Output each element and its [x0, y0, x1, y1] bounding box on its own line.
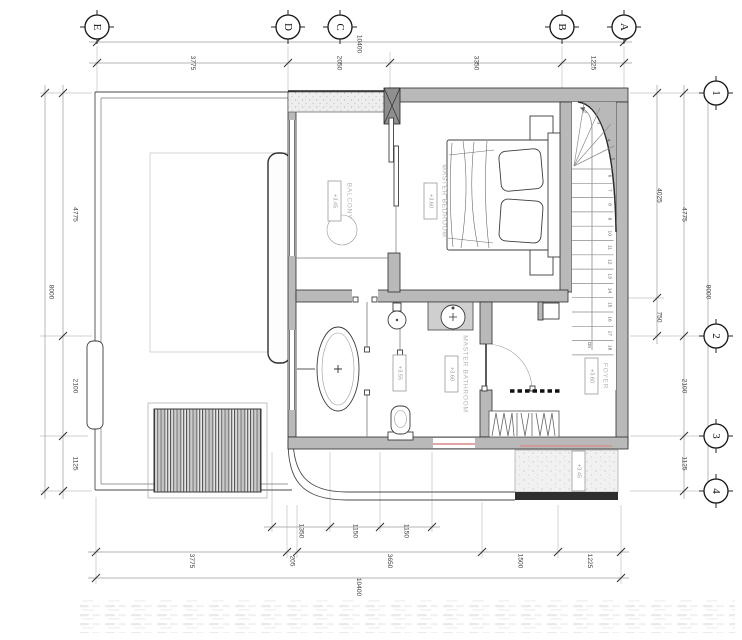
dim-text: 10400: [356, 35, 363, 54]
label-ledge-level: +3.45: [572, 451, 585, 491]
room-name: MASTER BEDROOM: [441, 164, 448, 237]
planter-band: [288, 92, 388, 112]
dim-text: 1150: [403, 524, 410, 539]
louver-grille: [154, 409, 261, 492]
wall-balcony-stub: [388, 253, 400, 292]
room-name: FOYER: [602, 363, 609, 389]
vanity: [428, 302, 473, 330]
label-balcony: +3.45 BALCONY: [328, 181, 353, 221]
dim-text: 1500: [517, 554, 524, 569]
stair-number: 18: [607, 345, 613, 351]
stair-number: 14: [607, 288, 613, 294]
level-tag: +3.60: [428, 194, 434, 208]
dim-text: 1150: [352, 524, 359, 539]
wall-north: [388, 88, 628, 102]
wall-bedroom-stair: [560, 102, 572, 292]
grid-letter: E: [91, 24, 103, 31]
stair-number: 17: [607, 331, 613, 337]
sliding-door-panel: [389, 118, 394, 162]
grid-letter: 2: [710, 333, 722, 339]
faded-footer-text: [80, 599, 735, 633]
bed-headboard: [548, 133, 560, 257]
stair-number: 7: [607, 189, 613, 192]
stair-number: 12: [607, 259, 613, 265]
dim-text: 1225: [590, 56, 597, 71]
wall-east: [616, 102, 628, 445]
grid-letter: C: [334, 23, 346, 30]
dim-text: 8000: [705, 285, 712, 300]
wall-bath-north: [296, 290, 568, 302]
closet-hanging-clothes: [489, 411, 559, 437]
stair-number: 4: [606, 139, 612, 142]
level-tag: +3.60: [449, 367, 455, 381]
dim-text: 750: [656, 311, 663, 322]
west-glazing-balcony: [289, 120, 296, 256]
room-name: MASTER BATHROOM: [462, 335, 469, 412]
wall-bath-foyer-upper: [480, 302, 492, 344]
dim-text: 2100: [72, 379, 79, 394]
south-opening: [433, 438, 475, 448]
floor-plan-drawing: 23456789101112131415161718 Dn: [0, 0, 742, 640]
room-name: BALCONY: [346, 183, 353, 219]
floor-plan-sheet: 23456789101112131415161718 Dn: [0, 0, 742, 640]
stair-number: 9: [607, 218, 613, 221]
grid-letter: B: [556, 23, 568, 30]
dim-text: 1125: [681, 456, 688, 471]
dim-text: 4775: [681, 207, 688, 222]
stair-number: 6: [607, 175, 613, 178]
stair-number: 5: [610, 158, 616, 161]
grid-letter: A: [618, 23, 630, 31]
bottom-ledge-edge: [515, 492, 618, 500]
grid-letter: 3: [710, 433, 722, 439]
grid-letter: 4: [710, 488, 722, 494]
stair-number: 11: [607, 245, 613, 250]
level-tag: +3.55: [397, 366, 403, 380]
wall-foyer-nib: [538, 302, 543, 320]
stair-number: 10: [607, 231, 613, 237]
door-stop: [353, 297, 358, 302]
dim-text: 2100: [681, 379, 688, 394]
stair-number: 16: [607, 316, 613, 322]
dim-text: 205: [289, 555, 296, 566]
foyer-closet-box: [543, 303, 559, 319]
boundary-gate-post: [87, 341, 103, 429]
dim-text: 1225: [586, 554, 593, 569]
dim-text: 4025: [656, 188, 663, 203]
bottom-ledge: [515, 450, 618, 492]
stair-number: 3: [596, 122, 602, 125]
level-tag: +3.60: [589, 369, 595, 383]
dim-text: 3775: [189, 56, 196, 71]
label-foyer: +3.60 FOYER: [585, 358, 609, 394]
grid-letter: 1: [710, 90, 722, 96]
glass-panel: [268, 153, 291, 363]
dim-text: 1350: [298, 524, 305, 539]
dim-text: 3775: [188, 554, 195, 569]
dim-text: 3350: [473, 56, 480, 71]
toilet: [388, 406, 413, 440]
level-tag: +3.45: [332, 194, 338, 208]
sliding-door-panel: [394, 146, 399, 206]
stair-number: 2: [582, 111, 588, 114]
dim-text: 1125: [72, 456, 79, 471]
dim-text: 4775: [72, 207, 79, 222]
west-glazing-bath-window: [289, 330, 296, 410]
stair-number: 13: [607, 273, 613, 279]
stair-dn-label: Dn: [587, 342, 592, 348]
door-stop: [372, 297, 377, 302]
dim-text: 2050: [336, 56, 343, 71]
grid-letter: D: [282, 23, 294, 31]
stair-number: 15: [607, 302, 613, 308]
dim-text: 10400: [355, 578, 362, 597]
stair-number: 8: [607, 203, 613, 206]
dim-text: 8000: [48, 285, 55, 300]
label-bath-floor-level: +3.55: [393, 355, 406, 391]
level-tag: +3.45: [576, 464, 582, 478]
dim-text: 3650: [386, 554, 393, 569]
